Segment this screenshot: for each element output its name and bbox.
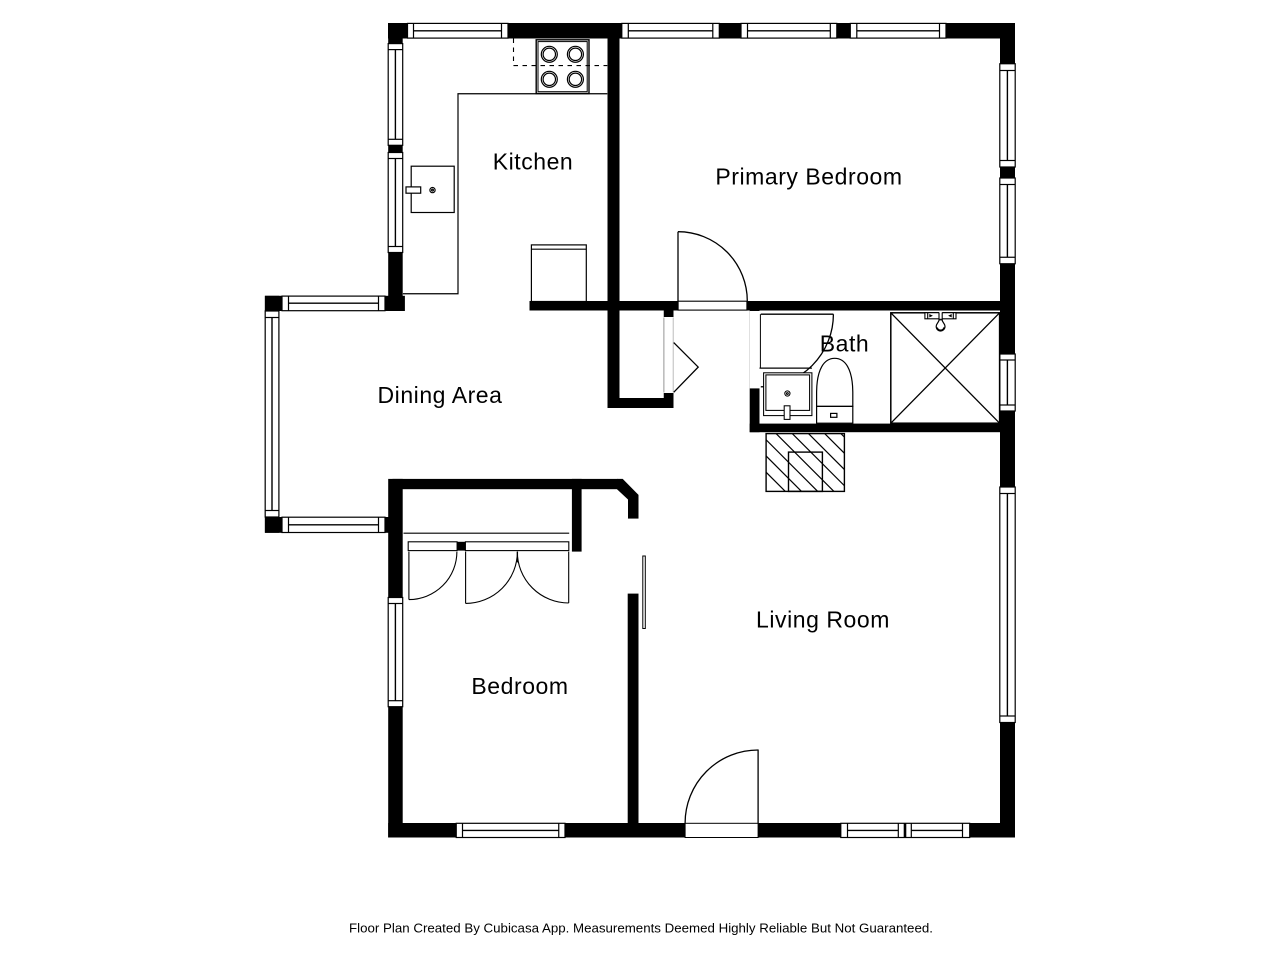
svg-text:Dining Area: Dining Area bbox=[378, 382, 503, 408]
svg-text:Bedroom: Bedroom bbox=[471, 673, 568, 699]
svg-text:Bath: Bath bbox=[820, 331, 870, 357]
svg-text:Primary Bedroom: Primary Bedroom bbox=[715, 164, 902, 190]
svg-text:Kitchen: Kitchen bbox=[493, 149, 574, 175]
svg-text:Living Room: Living Room bbox=[756, 607, 890, 633]
svg-text:Floor Plan Created By Cubicasa: Floor Plan Created By Cubicasa App. Meas… bbox=[349, 921, 933, 936]
